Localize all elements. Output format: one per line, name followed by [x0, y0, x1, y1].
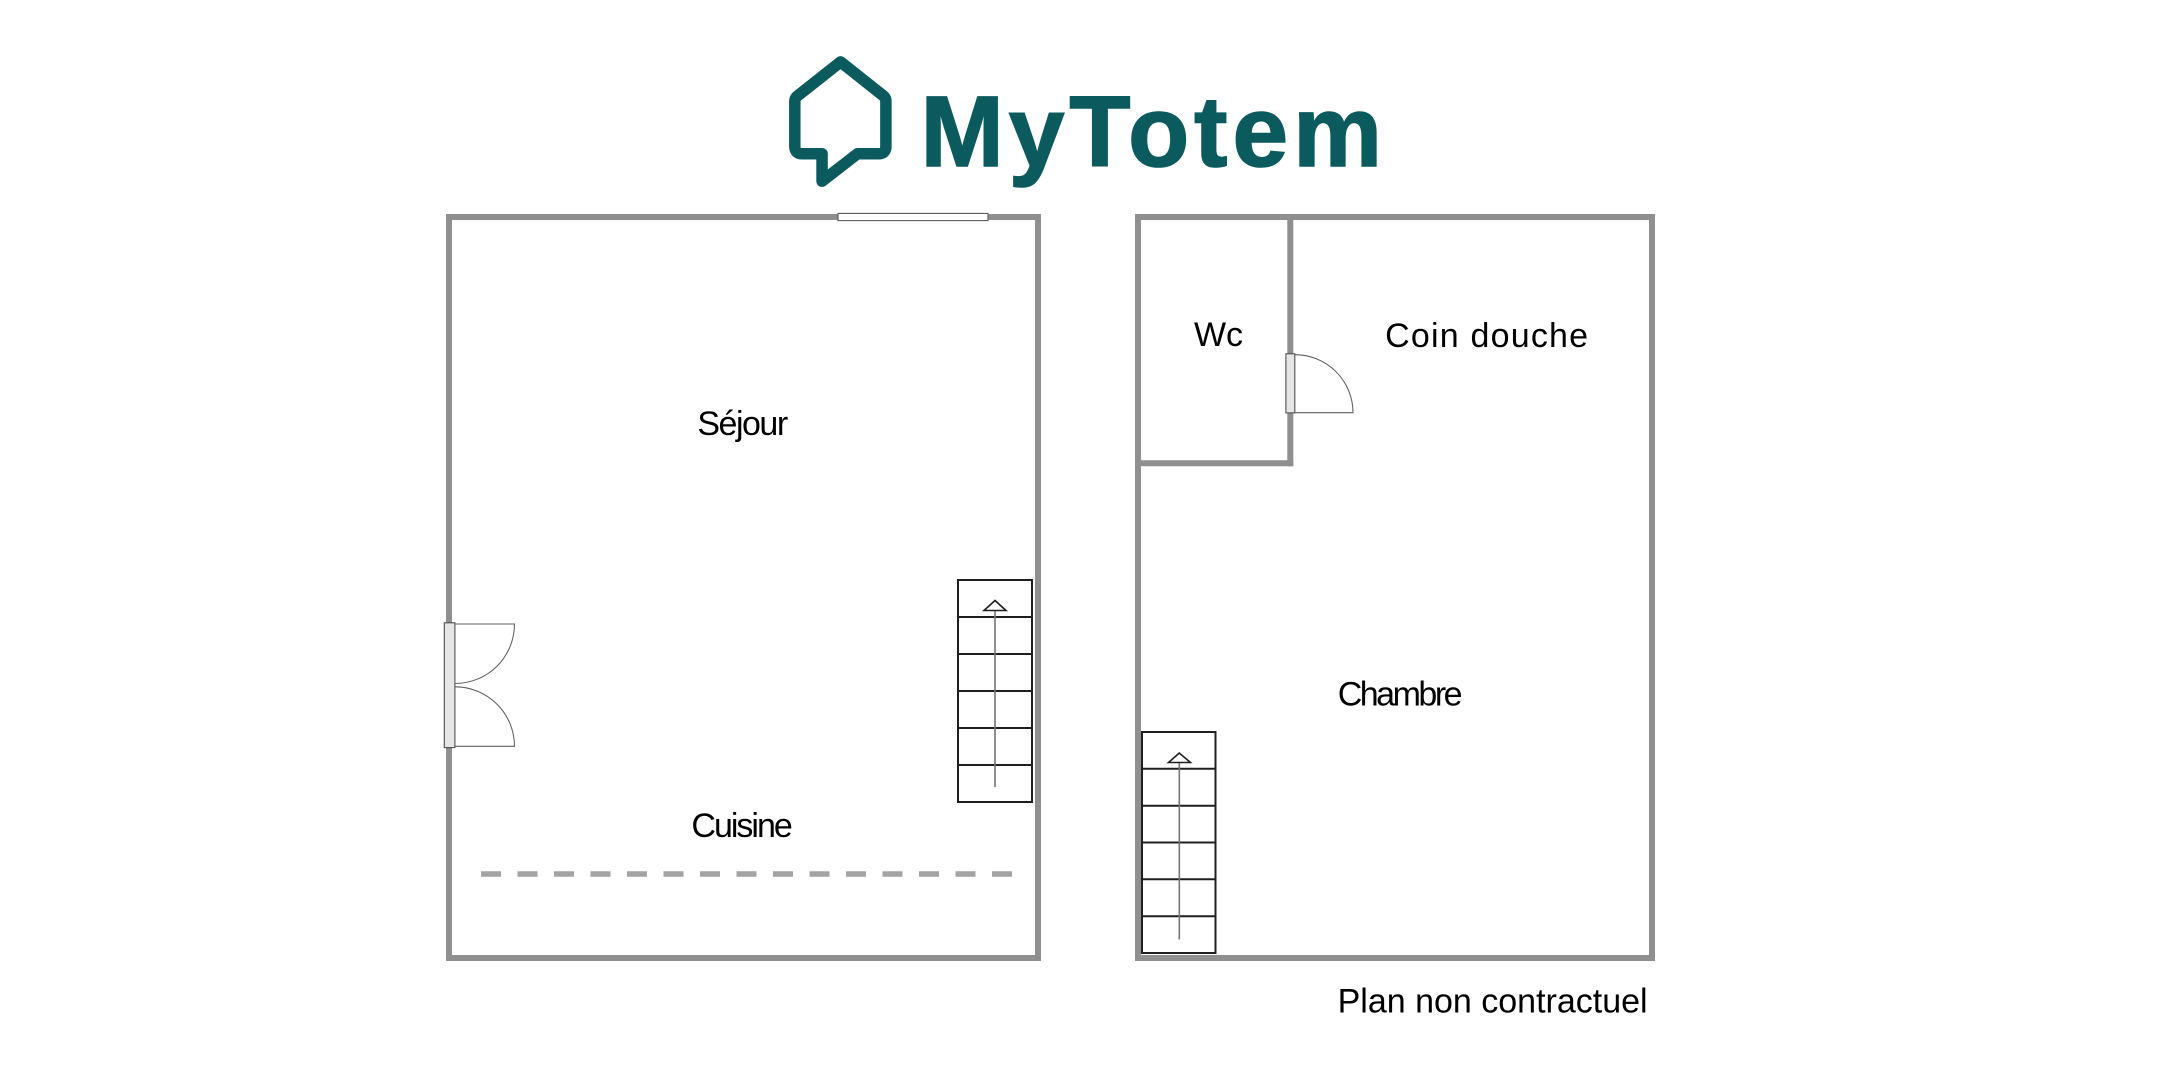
svg-text:MyTotem: MyTotem: [921, 76, 1388, 188]
svg-text:Plan non contractuel: Plan non contractuel: [1338, 982, 1648, 1020]
svg-text:Cuisine: Cuisine: [691, 807, 791, 845]
svg-text:Séjour: Séjour: [697, 405, 787, 443]
svg-text:Coin douche: Coin douche: [1385, 317, 1589, 355]
svg-text:Wc: Wc: [1194, 316, 1243, 354]
svg-text:Chambre: Chambre: [1338, 676, 1462, 714]
